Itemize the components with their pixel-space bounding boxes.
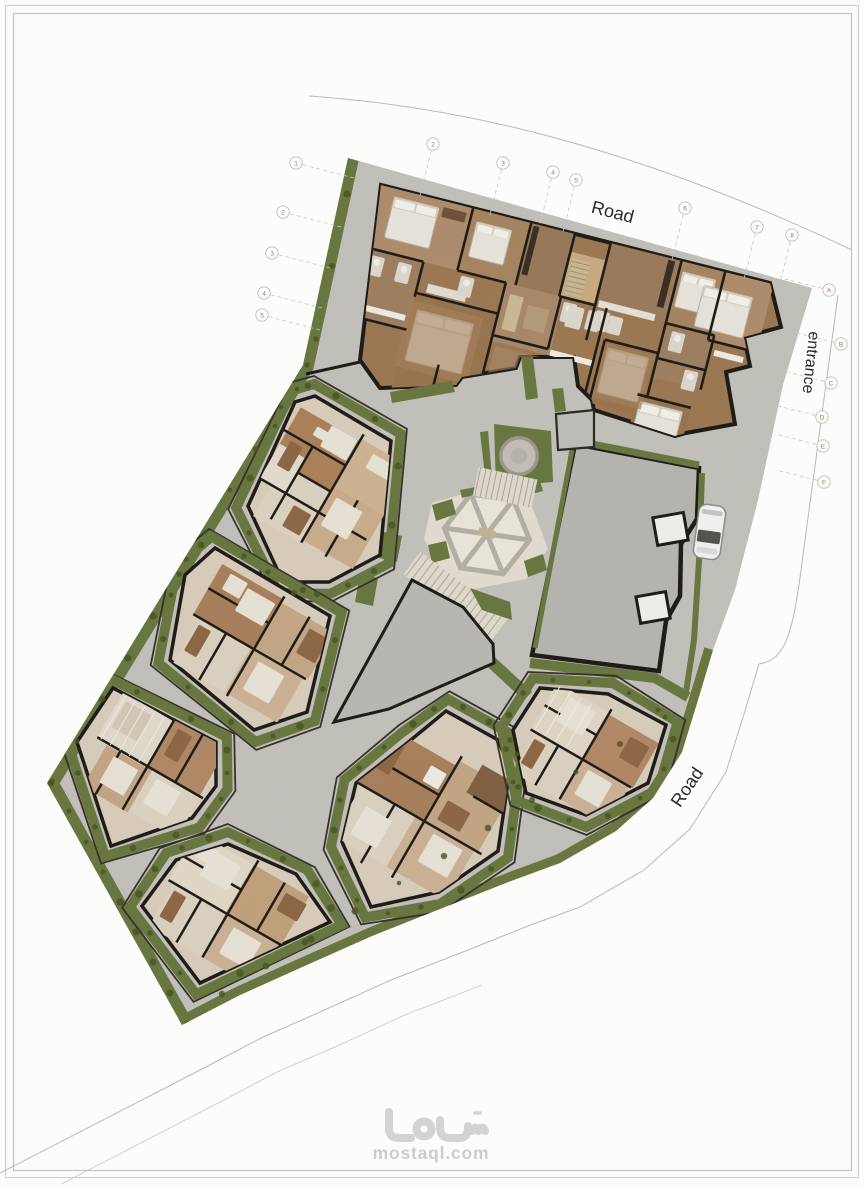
svg-text:A: A: [827, 287, 832, 294]
svg-text:E: E: [821, 443, 826, 450]
svg-text:3: 3: [270, 250, 274, 257]
svg-text:mostaql.com: mostaql.com: [373, 1143, 490, 1163]
svg-text:5: 5: [260, 312, 264, 319]
svg-text:2: 2: [281, 209, 285, 216]
svg-text:3: 3: [501, 160, 505, 167]
svg-text:8: 8: [790, 232, 794, 239]
svg-text:4: 4: [262, 290, 266, 297]
svg-text:5: 5: [574, 177, 578, 184]
svg-text:6: 6: [683, 205, 687, 212]
svg-text:D: D: [820, 414, 825, 421]
svg-text:1: 1: [294, 160, 298, 167]
svg-text:C: C: [829, 380, 834, 387]
svg-text:7: 7: [755, 224, 759, 231]
svg-text:4: 4: [551, 169, 555, 176]
svg-text:2: 2: [431, 141, 435, 148]
svg-text:F: F: [822, 479, 826, 486]
svg-text:B: B: [839, 341, 843, 348]
